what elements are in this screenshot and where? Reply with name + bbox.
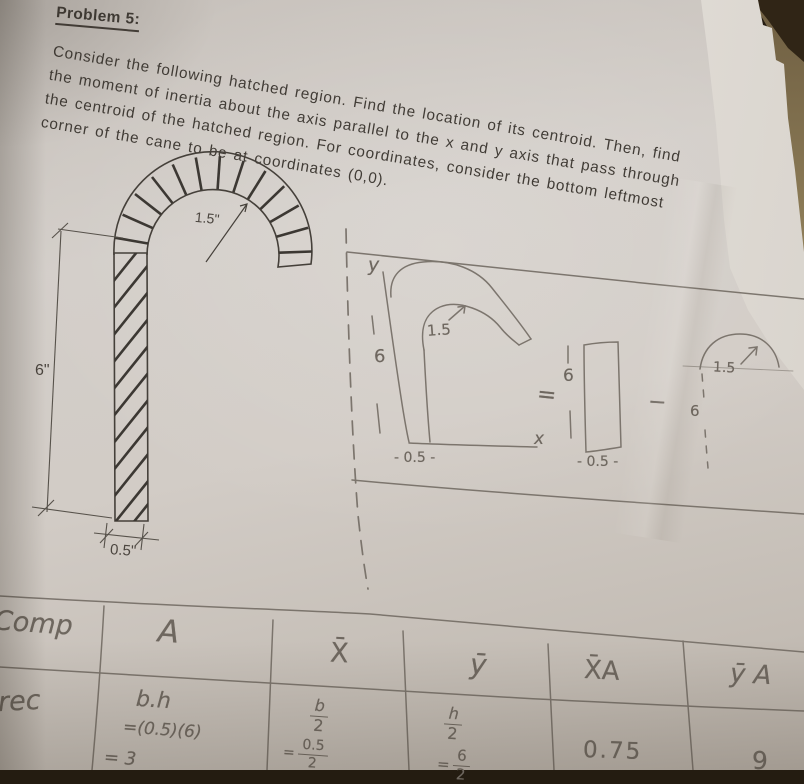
table-header-ybar: ȳ [469,648,487,682]
sketch-y-axis-label: y [368,254,379,276]
cell-area-formula: b.h [135,687,172,714]
sketch-rect-height-label: 6 [563,366,574,386]
semicircle-dashed-height [702,374,708,468]
sketch-y-axis [383,272,409,442]
sketch-equals-sign: = [536,381,558,409]
photo-of-worksheet: { "problem": { "title": "Problem 5:", "b… [0,0,804,770]
workarea-top-border [347,252,804,299]
table-column-line-1 [92,606,104,770]
cell-ybar-substitution: =62 [436,747,471,784]
xbar-numerator: b [310,697,329,717]
table-header-xbar-a: X̄A [583,655,620,687]
cell-ybar-a-value: 9 [752,746,768,775]
ybar-sub-numerator: 6 [453,748,472,767]
semicircle-radius-arrow [741,347,757,364]
xbar-sub-numerator: 0.5 [298,737,329,756]
table-header-separator [0,667,804,711]
table-column-line-3 [403,631,409,770]
pencil-annotations [0,0,804,770]
xbar-equals: = [282,745,295,762]
sketch-height-tick-top [372,316,374,334]
cell-ybar-formula: h2 [443,705,464,743]
ybar-equals: = [436,755,450,774]
sketch-semi-height-label: 6 [690,402,700,420]
table-header-area: A [157,613,181,650]
table-row-label-rec: rec [0,685,41,718]
sketch-cane-inner-bar [424,350,430,442]
sketch-cane-height-label: 6 [374,346,385,367]
sketch-semi-radius-label: 1.5 [713,359,736,376]
xbar-sub-denominator: 2 [297,754,328,772]
sketch-minus-sign: − [647,389,667,415]
sketch-radius-arrow [449,306,465,320]
table-header-comp: Comp [0,605,74,641]
ybar-numerator: h [444,705,463,725]
table-column-line-2 [267,620,273,770]
cell-xbar-substitution: =0.52 [282,736,329,771]
sketch-rect-width-label: - 0.5 - [577,454,618,470]
table-header-ybar-a: ȳ A [729,659,772,691]
cell-xbar-formula: b2 [309,697,330,735]
sketch-cane-outer [391,262,531,339]
workarea-left-dashed-border [346,229,368,589]
sketch-x-axis-label: x [534,429,544,449]
sketch-cane-tip [519,339,531,345]
table-header-xbar: X̄ [329,638,349,670]
sketch-rectangle [584,342,621,452]
xbar-denominator: 2 [309,716,328,735]
sketch-height-tick-bottom [377,404,380,433]
cell-xbar-a-value: 0.75 [583,737,643,765]
rect-height-tick-bottom [570,411,571,438]
ybar-denominator: 2 [443,724,462,743]
workarea-bottom-border [352,480,804,514]
sketch-semicircle [700,334,779,369]
sketch-cane-width-label: - 0.5 - [394,450,435,466]
table-column-line-4 [548,644,554,770]
sketch-cane-radius-label: 1.5 [426,320,451,340]
cell-area-value: = 3 [103,747,137,770]
ybar-sub-denominator: 2 [451,766,470,784]
sketch-x-axis [409,443,537,447]
